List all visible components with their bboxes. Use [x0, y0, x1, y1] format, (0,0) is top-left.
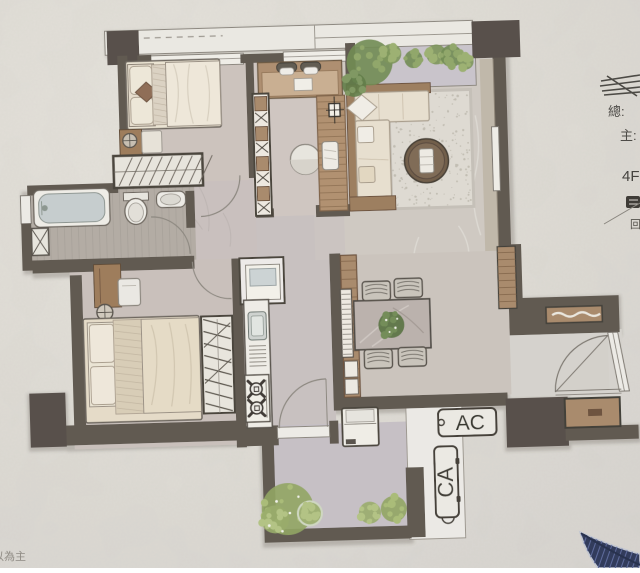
svg-text:回: 回 [630, 218, 640, 231]
svg-text:以為主: 以為主 [0, 549, 26, 563]
svg-text:4F: 4F [622, 168, 640, 185]
svg-text:主:: 主: [620, 128, 637, 143]
svg-text:總:: 總: [608, 104, 625, 119]
